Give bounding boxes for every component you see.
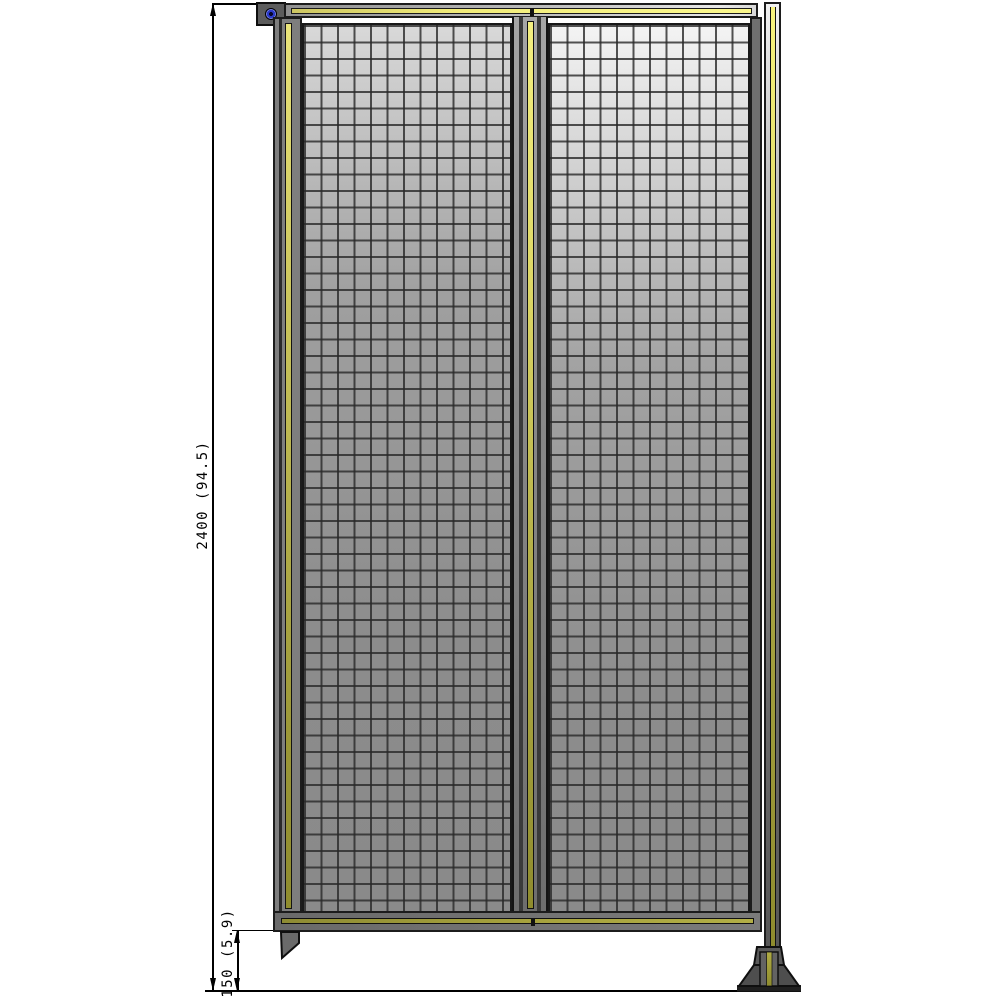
dimension-line-2400	[212, 3, 214, 991]
post-yellow-stripe	[770, 7, 776, 946]
foot-post-stripe	[767, 952, 773, 986]
left-frame-profile	[273, 17, 302, 913]
stripe-notch	[531, 918, 535, 926]
divider-shadow-band	[519, 17, 523, 913]
ground-line	[205, 990, 801, 992]
arrowhead-up-icon	[210, 3, 216, 16]
dimension-label-foot-height: 150 (5.9)	[220, 908, 236, 997]
wire-mesh-panel-left	[302, 23, 512, 913]
bottom-rail-olive-stripe	[281, 918, 754, 924]
right-frame-profile	[750, 17, 762, 913]
bottom-left-bracket	[278, 930, 304, 962]
support-post	[764, 2, 781, 948]
bottom-rail	[273, 911, 762, 932]
center-divider-profile	[512, 17, 548, 913]
extension-line-top	[213, 3, 258, 5]
top-rail-yellow-stripe	[291, 8, 752, 14]
frame-groove	[279, 19, 282, 911]
top-rail	[284, 3, 758, 18]
divider-yellow-stripe	[527, 21, 534, 909]
left-yellow-stripe	[285, 23, 292, 909]
floor-foot	[728, 944, 806, 994]
wire-mesh-panel-right	[548, 23, 750, 913]
dimension-label-overall-height: 2400 (94.5)	[195, 440, 211, 549]
technical-drawing-canvas: 2400 (94.5) 150 (5.9)	[0, 0, 1000, 1000]
divider-shadow-band	[537, 17, 541, 913]
stripe-notch	[530, 8, 534, 16]
